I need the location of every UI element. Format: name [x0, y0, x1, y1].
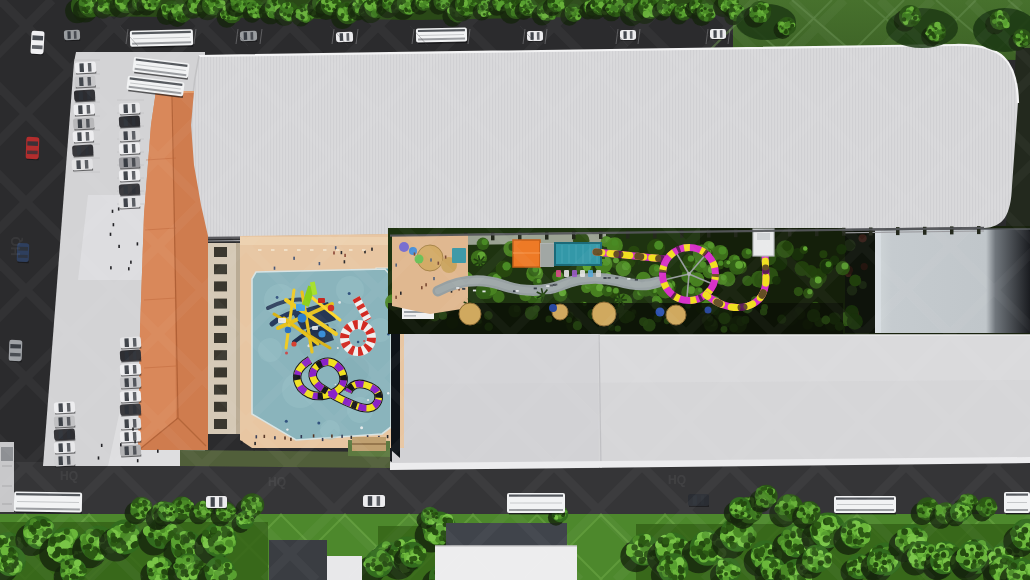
svg-text:HQ: HQ: [60, 469, 78, 483]
svg-text:HQ: HQ: [268, 475, 286, 489]
svg-text:HQ: HQ: [8, 237, 23, 257]
svg-text:HQ: HQ: [668, 473, 686, 487]
